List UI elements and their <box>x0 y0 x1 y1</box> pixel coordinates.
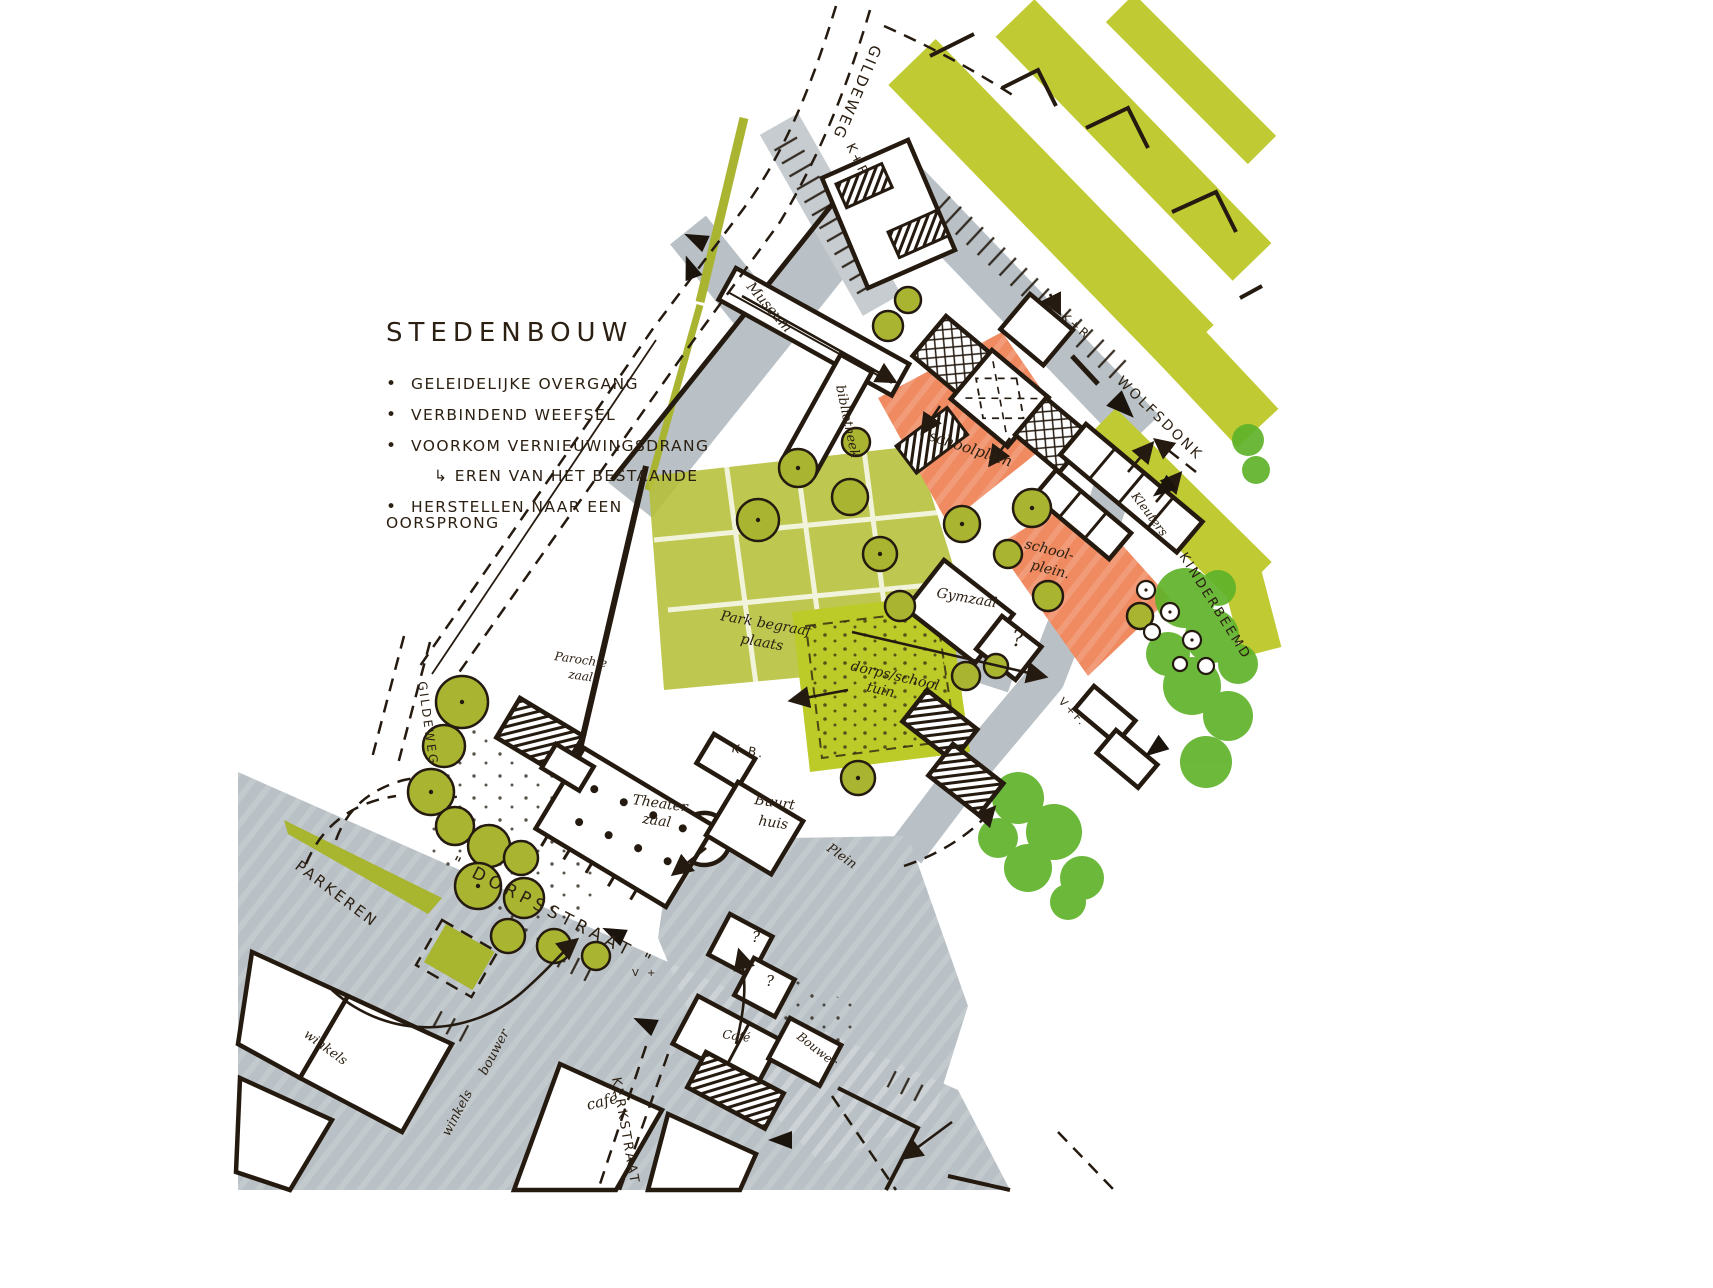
annotation-panel: STEDENBOUW GELEIDELIJKE OVERGANG VERBIND… <box>386 318 726 531</box>
site-plan-canvas: GILDEWEGK+RMuseumbibliotheek↓ K+RWOLFSDO… <box>0 0 1713 1288</box>
site-plan-page: GILDEWEGK+RMuseumbibliotheek↓ K+RWOLFSDO… <box>0 0 1713 1288</box>
map-label-vraagteken-gym: ? <box>1012 627 1024 652</box>
annotation-bullet-4: ↳ EREN VAN HET BESTAANDE <box>386 469 726 485</box>
map-label-v-plus: V + <box>632 968 658 979</box>
map-label-vraagteken-1: ? <box>752 928 761 946</box>
annotation-bullet-3: VOORKOM VERNIEUWINGSDRANG <box>386 438 726 455</box>
map-label-parochie-b: zaal <box>567 667 594 684</box>
map-label-gildeweg-top: GILDEWEG <box>829 42 885 142</box>
annotation-bullet-5: HERSTELLEN NAAR EEN OORSPRONG <box>386 499 726 532</box>
page-title: STEDENBOUW <box>386 318 726 348</box>
annotation-list: GELEIDELIJKE OVERGANG VERBINDEND WEEFSEL… <box>386 376 726 531</box>
annotation-bullet-1: GELEIDELIJKE OVERGANG <box>386 376 726 393</box>
map-label-vraagteken-2: ? <box>766 972 775 990</box>
annotation-bullet-2: VERBINDEND WEEFSEL <box>386 407 726 424</box>
